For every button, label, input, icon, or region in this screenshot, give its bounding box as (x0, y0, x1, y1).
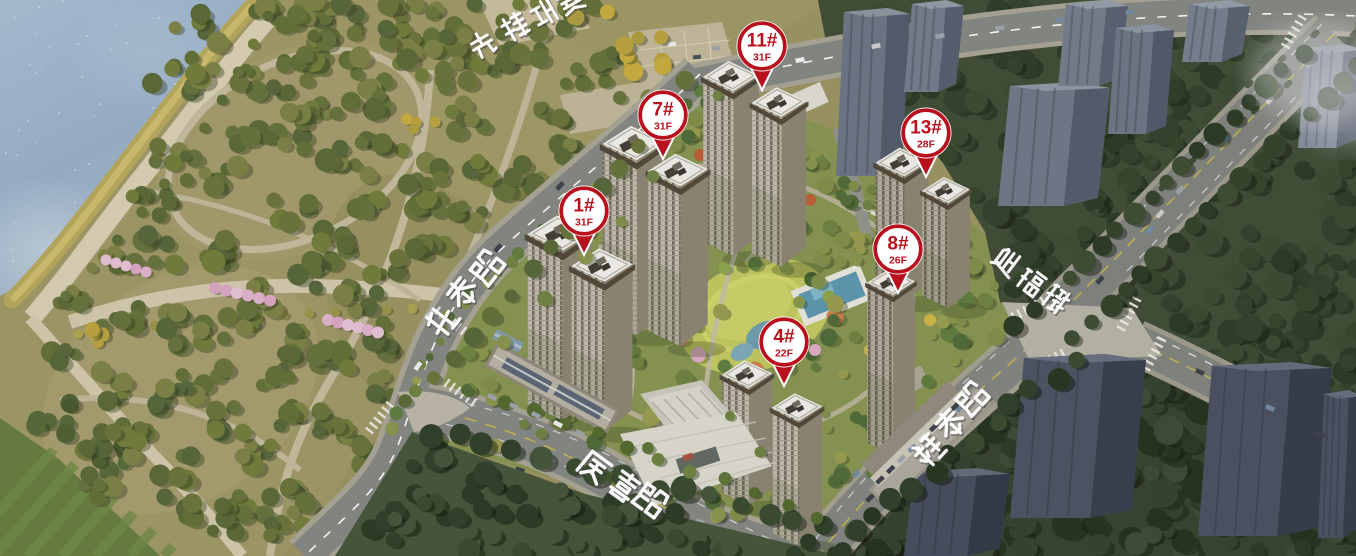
svg-text:4#: 4# (773, 327, 795, 348)
svg-text:31F: 31F (575, 217, 594, 229)
svg-text:8#: 8# (887, 234, 909, 255)
svg-text:7#: 7# (652, 100, 674, 121)
svg-text:28F: 28F (917, 139, 936, 151)
svg-text:22F: 22F (775, 348, 794, 360)
svg-text:11#: 11# (747, 31, 778, 52)
svg-text:31F: 31F (654, 121, 673, 133)
svg-text:31F: 31F (753, 52, 772, 64)
svg-text:13#: 13# (910, 118, 942, 139)
svg-text:26F: 26F (889, 255, 908, 267)
svg-text:1#: 1# (573, 196, 595, 217)
